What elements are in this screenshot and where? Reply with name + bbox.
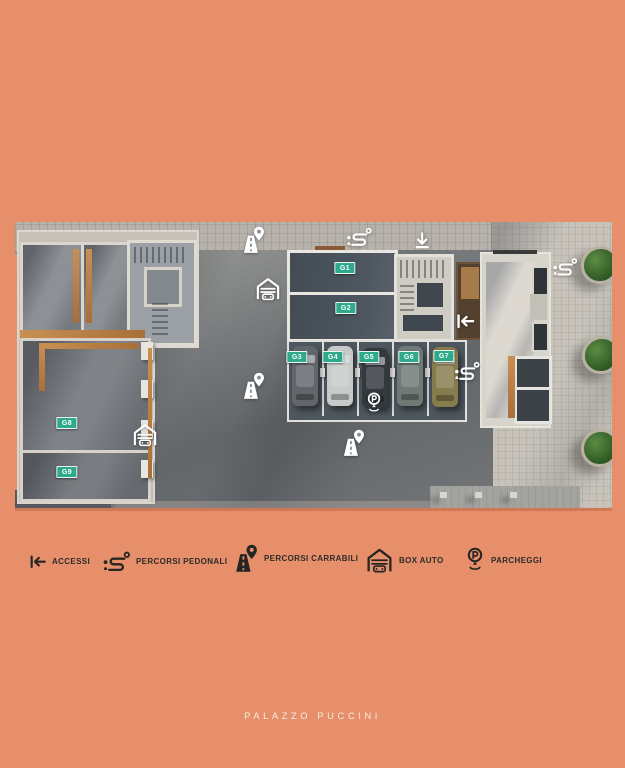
pedestrian-path-icon — [346, 226, 373, 249]
window-slot — [532, 322, 549, 352]
tree — [582, 336, 612, 374]
legend-item-percorsi-pedonali: PERCORSI PEDONALI — [102, 544, 227, 578]
unit-label-g1: G1 — [334, 262, 355, 274]
stair-void — [417, 283, 443, 307]
legend-label: PARCHEGGI — [491, 556, 542, 565]
right-building-roofline — [493, 250, 537, 254]
stair-treads — [152, 303, 168, 335]
room-upper-left-2 — [81, 242, 133, 334]
road-pin-icon — [238, 225, 266, 255]
stair-treads — [134, 247, 186, 263]
bollard — [510, 492, 517, 498]
dark-room — [514, 356, 552, 424]
parking-pin-icon — [365, 392, 384, 415]
legend-label: PERCORSI CARRABILI — [264, 554, 358, 563]
unit-label-g2: G2 — [335, 302, 356, 314]
stall-stub — [390, 368, 395, 377]
unit-label-g3: G3 — [286, 351, 307, 363]
pedestrian-path-icon — [454, 360, 481, 383]
stall-divider — [427, 342, 429, 416]
garage-box-g2 — [287, 292, 398, 342]
balcony-block — [530, 294, 547, 320]
road-pin-icon — [338, 428, 366, 458]
wood-wall — [39, 343, 45, 391]
garage-icon — [132, 422, 159, 449]
right-building — [480, 252, 551, 428]
tree — [581, 429, 612, 467]
wood-brace — [148, 348, 152, 478]
unit-label-g8: G8 — [56, 417, 77, 429]
stair-treads — [400, 260, 446, 278]
pedestrian-path-icon — [102, 549, 131, 574]
stair-void — [403, 315, 443, 331]
wood-wall — [508, 356, 515, 418]
stairwell-right — [394, 254, 454, 342]
legend-item-parcheggi: PARCHEGGI — [464, 543, 542, 577]
pedestrian-path-icon — [552, 256, 578, 278]
bollard — [440, 492, 447, 498]
bottom-pavement — [430, 486, 580, 508]
road-pin-icon — [230, 543, 259, 574]
legend-label: ACCESSI — [52, 557, 90, 566]
room-upper-left-1 — [20, 242, 84, 334]
unit-label-g5: G5 — [358, 351, 379, 363]
access-arrow-icon — [28, 552, 47, 571]
access-arrow-icon — [455, 311, 476, 332]
unit-label-g9: G9 — [56, 466, 77, 478]
page-title: PALAZZO PUCCINI — [244, 711, 381, 722]
page: { "page": { "background_color": "#e78f6a… — [0, 0, 625, 768]
garage-icon — [365, 546, 394, 575]
bollard — [475, 492, 482, 498]
legend-item-accessi: ACCESSI — [28, 544, 90, 578]
tree — [581, 246, 612, 284]
wood-shelf — [39, 343, 139, 349]
stair-landing — [144, 267, 182, 307]
legend-item-box-auto: BOX AUTO — [365, 543, 444, 577]
down-arrow-icon — [412, 231, 432, 251]
wood-wall — [86, 249, 92, 323]
legend-label: PERCORSI PEDONALI — [136, 557, 227, 566]
floor-plan: G1 G2 G3 G4 G5 G6 G7 G8 G9 — [15, 222, 612, 508]
parking-pin-icon — [464, 547, 486, 573]
wood-divider-wall — [20, 330, 145, 338]
legend-item-percorsi-carrabili: PERCORSI CARRABILI — [230, 541, 358, 575]
stall-stub — [320, 368, 325, 377]
stall-stub — [425, 368, 430, 377]
stair-treads — [400, 281, 414, 311]
room-g9 — [20, 450, 151, 502]
garage-icon — [255, 276, 282, 303]
window-slot — [532, 266, 549, 296]
stall-divider — [392, 342, 394, 416]
road-pin-icon — [238, 371, 266, 401]
unit-label-g4: G4 — [322, 351, 343, 363]
legend-label: BOX AUTO — [399, 556, 444, 565]
garage-box-g1 — [287, 250, 398, 298]
wood-wall — [73, 249, 79, 323]
unit-label-g7: G7 — [433, 350, 454, 362]
unit-label-g6: G6 — [398, 351, 419, 363]
wood-closet-interior — [461, 267, 479, 299]
stall-stub — [355, 368, 360, 377]
